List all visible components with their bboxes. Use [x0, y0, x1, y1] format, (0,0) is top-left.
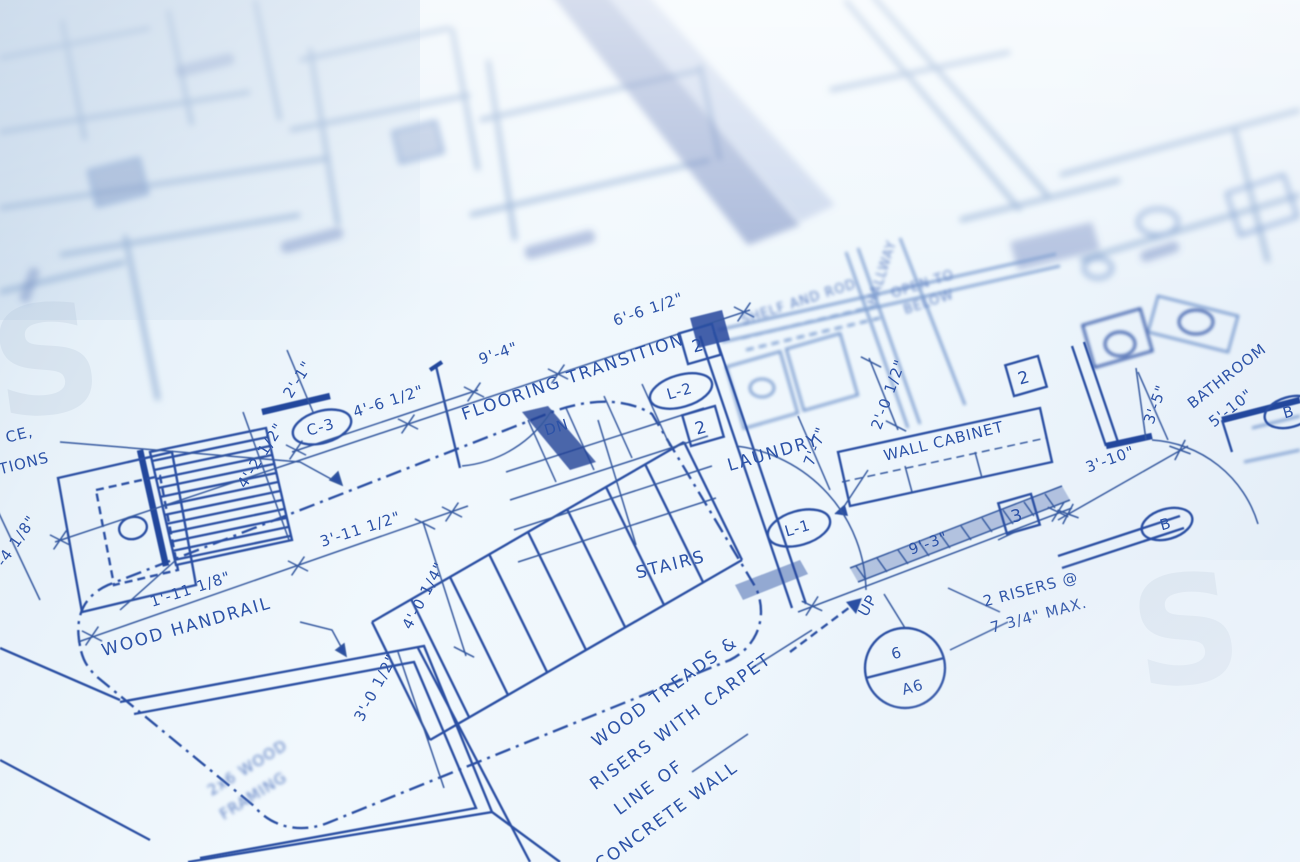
handrail-leader: [300, 622, 346, 656]
dim-3-11: 3'-11 1/2": [318, 508, 403, 551]
keynote-2b: 2: [693, 417, 711, 440]
dim-3-4: 3'-4 1/8": [0, 512, 40, 582]
wall-cabinet-label: WALL CABINET: [882, 418, 1006, 465]
washer-dryer: [726, 334, 857, 429]
framing-room: [120, 646, 492, 862]
dim-2-1: 2'-1": [279, 357, 316, 401]
stairs-label: STAIRS: [634, 547, 708, 584]
door-tag-c3: C-3: [304, 415, 336, 440]
door-tag-l1: L-1: [783, 516, 813, 540]
keynote-2c: 2: [1016, 367, 1034, 390]
bottom-right-fade-overlay: [860, 560, 1300, 862]
dim-3-5: 3'-5": [1140, 382, 1171, 426]
dim-3-0: 3'-0 1/2": [350, 651, 400, 724]
stair-break-wall: [522, 406, 596, 470]
door-tag-b2: B: [1158, 514, 1174, 534]
door-tag-l2: L-2: [665, 379, 695, 403]
sink: [1179, 310, 1213, 334]
toilet: [1083, 309, 1153, 368]
dim-4-0: 4'-0 1/4": [398, 559, 448, 632]
corner-tint-overlay: [0, 0, 420, 320]
dim-9-4: 9'-4": [476, 338, 520, 368]
blueprint-photo: FLOORING TRANSITION 9'-4" 6'-6 1/2" DN S…: [0, 0, 1300, 862]
